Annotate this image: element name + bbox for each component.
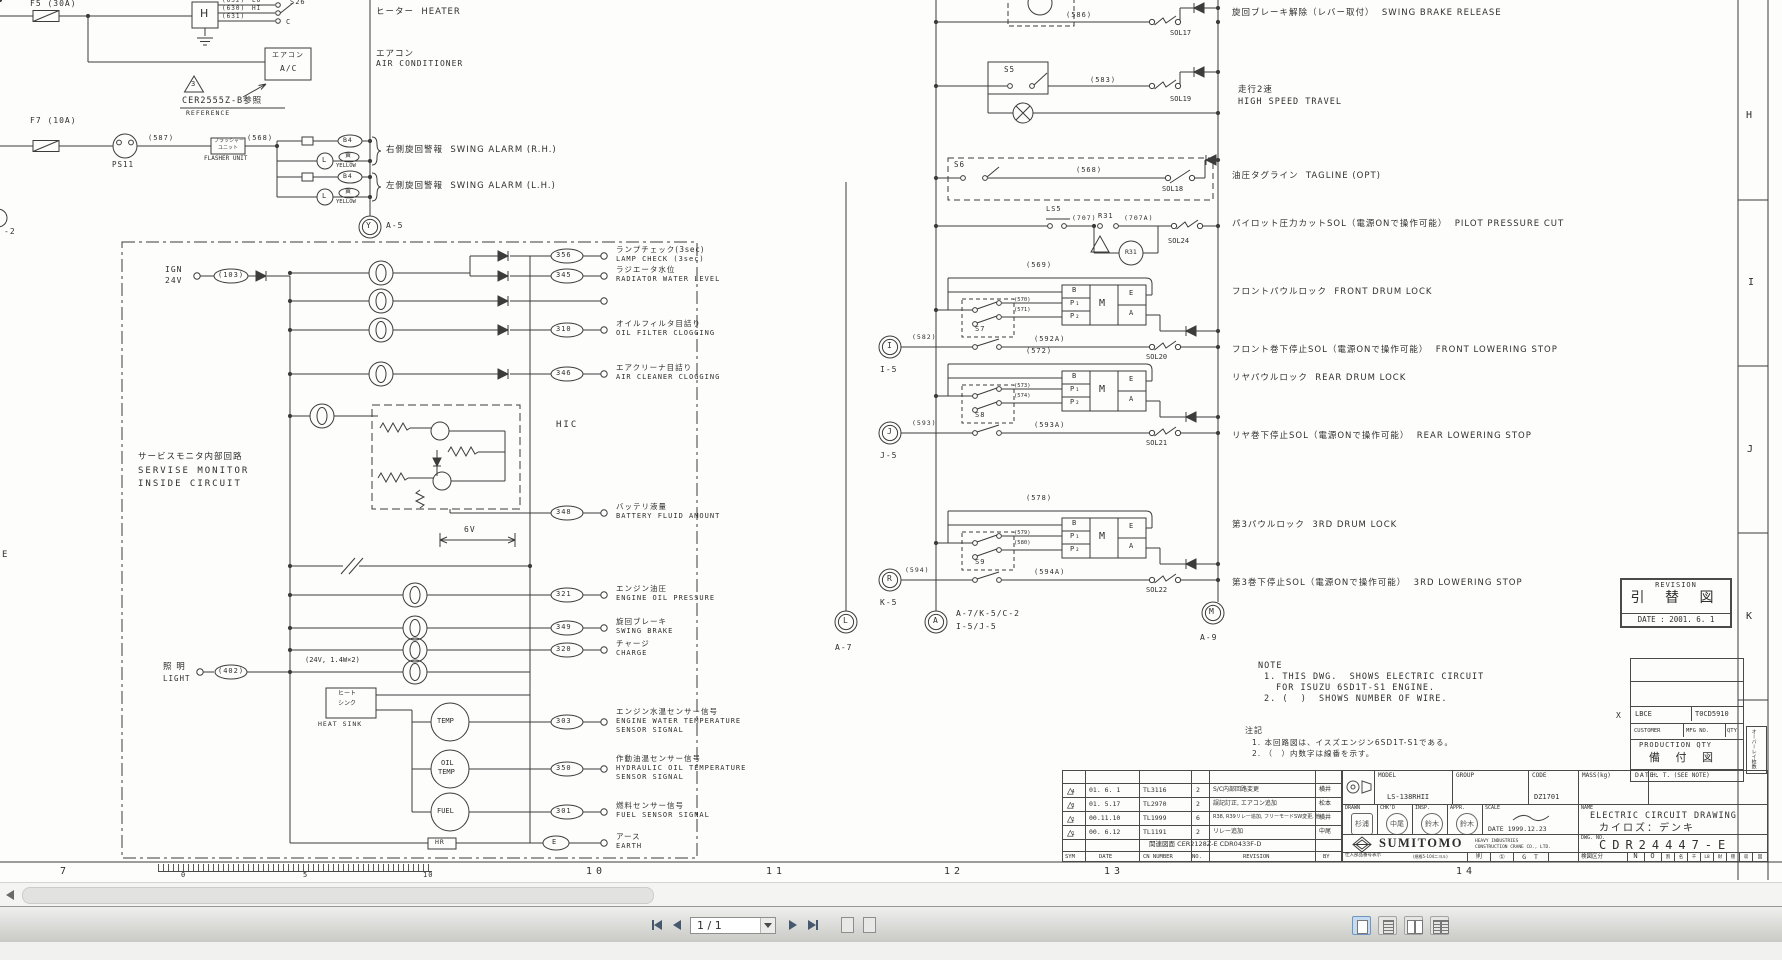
rev3-desc: 誤記訂正, エアコン追加 [1213,801,1277,808]
mbox3-a: A [1129,543,1134,551]
pdf-bottom-toolbar: 1 / 1 66.67% [0,906,1782,942]
schematic-page: F5 (30A) H (632) LO (630) HI (631) S26 C… [0,0,1782,882]
label-radiator-jp: ラジエータ水位 [616,266,675,274]
grid-letter-e: E [2,550,8,560]
chevron-down-icon [764,923,772,928]
bifuzu-label: 備 付 図 [1649,752,1719,764]
facing-view-icon [1407,920,1415,934]
drawn-header: DRAWN [1345,806,1360,812]
connector-a-refs-1: A-7/K-5/C-2 [956,610,1020,619]
light-label-jp: 照 明 [163,663,186,673]
page-dropdown-button[interactable] [760,918,775,933]
relay-r31-circle: R31 [1125,249,1137,256]
mbox3-m: M [1099,531,1106,542]
single-page-icon [1357,920,1368,934]
rev4-sym: 4 [1072,790,1075,796]
wire-label-320: 320 [556,646,572,654]
wire-24v-note: (24V, 1.4W×2) [305,657,360,665]
previous-page-button[interactable] [668,916,686,934]
rev1-date: 00. 6.12 [1089,829,1120,836]
yellow-lower: YELLOW [336,199,356,205]
production-qty-label: PRODUCTION QTY [1639,742,1712,750]
overlay-count-label: オーバーレイ枚数 [1750,729,1756,769]
label-lamp-check-jp: ランプチェック(3sec) [616,246,705,254]
scroll-left-icon [6,890,14,900]
grid-letter-j: J [1747,444,1754,455]
flasher-unit-en: FLASHER UNIT [204,156,247,163]
ac-box-label-en: A/C [280,65,297,74]
label-high-speed-travel-en: HIGH SPEED TRAVEL [1238,98,1342,108]
page-number-input[interactable]: 1 / 1 [690,917,776,934]
chkd-stamp: 中尾 [1386,813,1408,835]
label-oil-filter-en: OIL FILTER CLOGGING [616,330,715,338]
rev2-no: 6 [1196,815,1201,822]
gt-mark: G T [1514,854,1548,861]
note-line3: 2. ( ) SHOWS NUMBER OF WIRE. [1264,695,1448,705]
pdf-viewer-window: F5 (30A) H (632) LO (630) HI (631) S26 C… [0,0,1782,960]
wire-103: (103) [218,272,244,280]
continuous-facing-view-button[interactable] [1430,916,1449,935]
fuel-sensor: FUEL [437,808,454,816]
rev1-cn: TL1191 [1143,829,1166,836]
production-box: LBCE T0CD5910 CUSTOMER MFG NO. QTY PRODU… [1630,658,1744,782]
revision-stamp-title: REVISION [1622,582,1730,590]
scale-cell: SCALE DATE 1999.12.23 [1482,804,1579,835]
wire-572: (572) [1026,348,1052,356]
appr-stamp: 鈴木 [1456,813,1478,835]
label-3rd-drum-lock: 第3パウルロック 3RD DRUM LOCK [1232,521,1397,531]
mbox2-p1: P₁ [1070,386,1080,394]
ps11-label: PS11 [112,161,134,169]
sol17-label: SOL17 [1170,30,1191,38]
note-jp-line1: 1. 本回路図は、イスズエンジン6SD1T-S1である。 [1252,739,1453,747]
wire-label-310: 310 [556,326,572,334]
connector-i: I [887,342,893,351]
insp-stamp: 鈴木 [1421,813,1443,835]
next-view-icon [863,917,876,933]
revision-stamp-kanji: 引 替 図 [1622,591,1730,607]
wire-593: (593) [912,420,937,427]
wire-583: (583) [1090,77,1116,85]
previous-view-button[interactable] [838,916,856,934]
heater-box-label: H [200,8,209,20]
wire-631: (631) [222,14,245,21]
label-oil-filter-jp: オイルフィルタ目詰り [616,320,701,328]
mass-cell: MASS(kg) [1578,770,1649,805]
facing-view-icon-2 [1415,920,1423,934]
tiny-cell-7: 図 [1752,852,1768,862]
label-fuel-sensor-jp: 燃料センサー信号 [616,802,684,810]
insp-cell: INSP. 鈴木 [1412,804,1448,835]
x-mark: X [1616,712,1622,721]
tiny-kanji: 図 [1753,855,1767,860]
drawn-stamp: 杉浦 [1351,813,1373,835]
ruler-5: 5 [303,872,308,880]
connector-l: L [843,617,849,626]
wire-586: (586) [1066,12,1092,20]
stamp-kanji: 則 [1468,854,1490,861]
connector-i5-ref: I-5 [880,366,897,375]
connector-m: M [1209,608,1215,617]
sol24-label: SOL24 [1168,238,1189,246]
wire-label-348: 348 [556,509,572,517]
last-page-icon [816,920,818,930]
qty-label: QTY [1727,728,1737,734]
wire-594a: (594A) [1034,569,1065,577]
connector-j: J [887,428,893,437]
o-mark: O [1645,853,1661,861]
tiny-kanji: 割 [1662,855,1674,860]
wire-573: (573) [1014,383,1031,389]
wire-b4-lower: B4 [343,173,353,180]
wire-569: (569) [1026,262,1052,270]
label-earth-en: EARTH [616,843,642,851]
wire-label-346: 346 [556,370,572,378]
mbox1-m: M [1099,298,1106,309]
code-header: CODE [1532,773,1546,780]
wire-label-349: 349 [556,624,572,632]
ruler-10: 10 [423,872,433,880]
ac-box-label-jp: エアコン [272,52,304,60]
heatsink-jp2: シンク [338,701,356,708]
ign-label: IGN [165,266,182,275]
terminal-c-label: C [286,19,291,27]
rev3-no: 2 [1196,801,1201,808]
label-swing-alarm-rh: 右側旋回警報 SWING ALARM (R.H.) [386,146,557,156]
chkd-cell: CHK'D 中尾 [1377,804,1413,835]
name-cell: NAME ELECTRIC CIRCUIT DRAWING カイロズ：デンキ [1578,804,1768,835]
switch-s5-label: S5 [1004,66,1015,74]
label-radiator-en: RADIATOR WATER LEVEL [616,276,720,284]
ht-header: H. T. (SEE NOTE) [1652,773,1710,780]
revision-stamp-date: DATE : 2001. 6. 1 [1622,616,1730,624]
tiny-cell-2: 千 [1687,852,1701,862]
sol18-label: SOL18 [1162,186,1183,194]
circle-1-mark: ① [1491,854,1513,861]
mbox1-e: E [1129,290,1134,298]
label-battery-jp: バッテリ液量 [616,503,667,511]
drawn-cell: DRAWN 杉浦 [1342,804,1378,835]
wire-632-lo: LO [252,0,261,5]
wire-label-321: 321 [556,591,572,599]
dimension-6v: 6V [464,526,476,535]
wire-402: (402) [218,668,244,676]
company-cell: SUMITOMO HEAVY INDUSTRIES CONSTRUCTION C… [1342,834,1579,853]
rev4-cn: TL3116 [1143,787,1166,794]
hr-box: HR [435,839,445,846]
flasher-unit-jp1: フラッシャー [214,139,244,145]
title-date: DATE 1999.12.23 [1488,826,1547,833]
label-rear-lowering-stop: リヤ巻下停止SOL（電源ONで操作可能） REAR LOWERING STOP [1232,432,1532,442]
wire-593a: (593A) [1034,422,1065,430]
wire-label-301: 301 [556,808,572,816]
connector-a-refs-2: I-5/J-5 [956,623,997,632]
wire-578: (578) [1026,495,1052,503]
tocd-number: T0CD5910 [1695,711,1729,719]
rev-header-no: NO. [1192,854,1202,860]
relay-r31-label: R31 [1098,213,1114,221]
rev4-by: 横井 [1319,787,1331,794]
company-sub2: CONSTRUCTION CRANE CO., LTD. [1475,845,1551,850]
ign-voltage: 24V [165,277,182,286]
label-high-speed-travel-jp: 走行2速 [1238,86,1273,96]
switch-s8-label: S8 [975,412,985,420]
tiny-kanji: 財 [1714,855,1726,860]
tiny-kanji: 名 [1675,855,1687,860]
heater-label: ヒーター HEATER [376,8,461,18]
rev2-by: 横井 [1319,815,1331,822]
drawing-name-en: ELECTRIC CIRCUIT DRAWING [1590,812,1737,822]
wire-571: (571) [1014,307,1031,313]
oil-temp-sensor-1: OIL [441,760,454,768]
appr-header: APPR. [1450,806,1465,812]
label-water-temp-jp: エンジン水温センサー信号 [616,708,718,716]
revision-table: △ 4 01. 6. 1 TL3116 2 S/C内部回路変更 横井 △ 3 0… [1062,770,1342,862]
label-swing-brake-jp: 旋回ブレーキ [616,618,667,626]
continuous-facing-icon [1433,920,1441,934]
switch-s9-label: S9 [975,559,985,567]
label-front-drum-lock: フロントパウルロック FRONT DRUM LOCK [1232,288,1432,298]
monitor-title-en1: SERVISE MONITOR [138,466,249,476]
insp-header: INSP. [1415,806,1430,812]
tiny-cell-0: 割 [1661,852,1675,862]
yellow-kanji-upper: 黄 [345,153,351,160]
connector-j5-ref: J-5 [880,452,897,461]
scale-header: SCALE [1485,806,1500,812]
wire-label-345: 345 [556,272,572,280]
switch-s7-label: S7 [975,326,985,334]
wire-label-e: E [552,839,557,847]
last-page-button[interactable] [804,916,822,934]
mbox2-m: M [1099,384,1106,395]
scrollbar-thumb[interactable] [22,887,654,904]
mass-header: MASS(kg) [1582,773,1611,780]
label-swing-alarm-lh: 左側旋回警報 SWING ALARM (L.H.) [386,182,556,192]
mbox2-b: B [1072,373,1077,381]
tiny-cell-6: 収 [1739,852,1753,862]
rev1-by: 中尾 [1319,829,1331,836]
rev-header-sym: SYM [1065,854,1075,860]
parts-cell: 仕入部品番号表示 (規格5-104ニヨル) [1342,852,1468,862]
next-view-button[interactable] [860,916,878,934]
rev1-no: 2 [1196,829,1201,836]
warning-triangle-3: 3 [191,81,196,89]
reference-dwg-number: CER2555Z-B参照 [182,97,262,107]
wire-574: (574) [1014,393,1031,399]
reference-label: REFERENCE [186,110,230,117]
wire-570: (570) [1014,297,1031,303]
rev4-no: 2 [1196,787,1201,794]
label-charge-jp: チャージ [616,640,650,648]
wire-707a: (707A) [1124,215,1153,222]
rev3-cn: TL2970 [1143,801,1166,808]
drawing-name-jp: カイロズ：デンキ [1599,823,1695,834]
grid-number-14: 14 [1456,866,1476,877]
mbox2-p2: P₂ [1070,399,1080,407]
ht-cell: H. T. (SEE NOTE) [1648,770,1768,805]
rev-header-cn: CN NUMBER [1143,854,1173,860]
label-tagline: 油圧タグライン TAGLINE (OPT) [1232,172,1381,182]
window-footer [0,942,1782,960]
light-label-en: LIGHT [163,675,191,683]
first-page-arrow-icon [654,920,662,930]
continuous-view-button[interactable] [1378,916,1397,935]
group-cell: GROUP [1452,770,1529,805]
wire-630-hi: HI [252,6,261,13]
kenzu-cell: 検図区分 [1578,852,1628,862]
grid-letter-k: K [1746,611,1753,622]
switch-ls5-label: LS5 [1046,206,1062,214]
parts-line1: 仕入部品番号表示 [1345,853,1381,858]
label-oil-pressure-jp: エンジン油圧 [616,585,667,593]
connector-k5-ref: K-5 [880,599,897,608]
wire-582: (582) [912,334,937,341]
label-earth-jp: アース [616,833,641,841]
label-oil-pressure-en: ENGINE OIL PRESSURE [616,595,715,603]
tiny-kanji: 徳 [1727,855,1739,860]
grid-number-11: 11 [766,866,786,877]
parts-line2: (規格5-104ニヨル) [1413,855,1448,859]
company-sub1: HEAVY INDUSTRIES [1475,839,1518,844]
tiny-cell-3: L8 [1700,852,1714,862]
wire-579: (579) [1014,530,1031,536]
monitor-title-jp: サービスモニタ内部回路 [138,453,243,463]
note-heading: NOTE [1258,662,1282,672]
label-lamp-check-en: LAMP CHECK (3sec) [616,256,705,264]
continuous-facing-icon-2 [1441,920,1449,934]
chkd-header: CHK'D [1380,806,1395,812]
label-charge-en: CHARGE [616,650,647,658]
company-name: SUMITOMO [1379,836,1463,850]
wire-568-right: (568) [1076,167,1102,175]
kenzu-label: 検図区分 [1581,854,1603,860]
wire-630: (630) [222,6,245,13]
label-rear-drum-lock: リヤパウルロック REAR DRUM LOCK [1232,374,1406,384]
connector-r: R [887,575,893,584]
rev4-desc: S/C内部回路変更 [1213,787,1259,794]
empty-cell [1548,852,1579,862]
rev3-date: 01. 5.17 [1089,801,1120,808]
group-header: GROUP [1456,773,1474,780]
sol21-label: SOL21 [1146,440,1167,448]
label-battery-en: BATTERY FLUID AMOUNT [616,513,720,521]
o-cell: O [1644,852,1662,862]
label-air-cleaner-jp: エアクリーナ目詰り [616,364,692,372]
label-fuel-sensor-en: FUEL SENSOR SIGNAL [616,812,710,820]
rev2-date: 00.11.10 [1089,815,1120,822]
sol20-label: SOL20 [1146,354,1167,362]
model-header: MODEL [1378,773,1396,780]
projection-symbol-cell [1342,770,1375,805]
flasher-unit-jp2: ユニット [218,146,238,152]
monitor-title-en2: INSIDE CIRCUIT [138,479,242,489]
ruler-0: 0 [181,872,186,880]
mbox3-e: E [1129,523,1134,531]
label-air-cleaner-en: AIR CLEANER CLOGGING [616,374,720,382]
dwg-number: CDR24447-E [1599,839,1731,852]
mfg-no-label: MFG NO. [1686,728,1709,734]
grid-number-13: 13 [1104,866,1124,877]
tiny-cell-5: 徳 [1726,852,1740,862]
customer-label: CUSTOMER [1634,728,1661,734]
grid-number-10: 10 [586,866,606,877]
wire-label-303: 303 [556,718,572,726]
grid-letter-i: I [1748,277,1755,288]
heatsink-jp1: ヒート [338,691,356,698]
scroll-left-button[interactable] [1,886,19,904]
sol19-label: SOL19 [1170,96,1191,104]
lbce-label: LBCE [1635,711,1652,719]
rev2-sym: 2 [1072,818,1075,824]
grid-number-12: 12 [944,866,964,877]
label-swing-brake-en: SWING BRAKE [616,628,673,636]
rev2-cn: TL1999 [1143,815,1166,822]
mbox3-b: B [1072,520,1077,528]
wire-707: (707) [1072,215,1097,222]
model-value: LS-138RHII [1387,794,1429,802]
connector-y: Y [366,222,372,231]
hic-label: HIC [556,420,578,430]
tiny-kanji: L8 [1701,855,1713,860]
stamp-cell-1: 則 [1467,852,1491,862]
tiny-cell-1: 名 [1674,852,1688,862]
continuous-view-icon [1383,920,1394,934]
label-hyd-oil-temp-jp: 作動油温センサー信号 [616,755,701,763]
note-jp-heading: 注記 [1245,727,1263,736]
heatsink-en: HEAT SINK [318,721,362,728]
note-jp-line2: 2. （ ）内数字は線番を示す。 [1252,750,1374,758]
dwg-no-cell: DWG. NO. CDR24447-E [1578,834,1768,853]
note-line1: 1. THIS DWG. SHOWS ELECTRIC CIRCUIT [1264,673,1484,683]
label-swing-brake-release: 旋回ブレーキ解除（レバー取付） SWING BRAKE RELEASE [1232,9,1502,19]
label-3rd-lowering-stop: 第3巻下停止SOL（電源ONで操作可能） 3RD LOWERING STOP [1232,579,1523,589]
stamp-cell-2: ① [1490,852,1514,862]
rev-header-date: DATE [1099,854,1112,860]
mbox2-e: E [1129,376,1134,384]
page-number-value: 1 / 1 [697,919,722,932]
rev3-by: 松本 [1319,801,1331,808]
gt-cell: G T [1513,852,1549,862]
appr-cell: APPR. 鈴木 [1447,804,1483,835]
tiny-cell-4: 財 [1713,852,1727,862]
single-page-view-button[interactable] [1352,916,1371,935]
wire-594: (594) [905,567,930,574]
tiny-kanji: 千 [1688,855,1700,860]
mbox2-a: A [1129,396,1134,404]
lamp-l-upper: L [322,157,327,165]
first-page-button[interactable] [648,916,666,934]
wire-label-356: 356 [556,252,572,260]
wire-label-350: 350 [556,765,572,773]
rev-header-by: BY [1323,854,1330,860]
mbox1-a: A [1129,310,1134,318]
tiny-kanji: 収 [1740,855,1752,860]
yellow-upper: YELLOW [336,163,356,169]
mbox1-p1: P₁ [1070,300,1080,308]
fuse-f5-label: F5 (30A) [30,0,77,9]
lamp-l-lower: L [322,193,327,201]
horizontal-scrollbar[interactable] [0,882,1782,906]
connector-y-ref: A-5 [386,222,403,231]
next-page-button[interactable] [784,916,802,934]
wire-b4-upper: B4 [343,137,353,144]
mbox1-b: B [1072,287,1077,295]
note-line2: FOR ISUZU 6SD1T-S1 ENGINE. [1276,684,1435,694]
facing-view-button[interactable] [1404,916,1423,935]
label-hyd-oil-temp-en2: SENSOR SIGNAL [616,774,684,782]
n-cell: N [1627,852,1645,862]
previous-page-icon [673,920,681,930]
